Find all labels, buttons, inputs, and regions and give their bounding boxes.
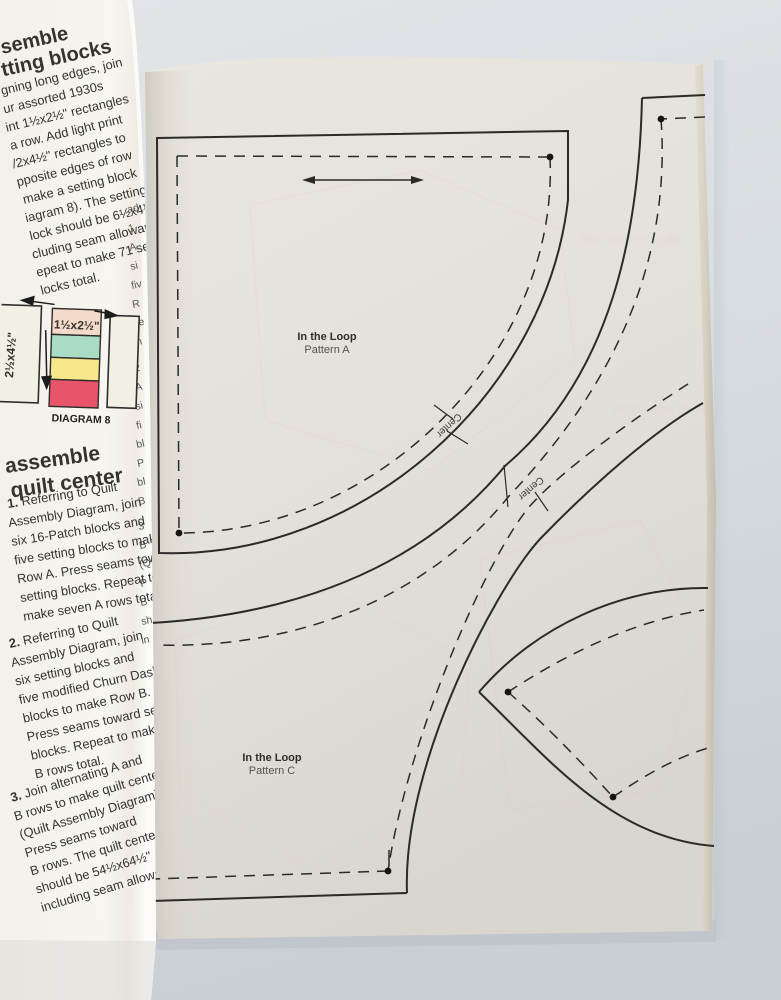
svg-text:DIAGRAM 8: DIAGRAM 8: [51, 412, 110, 426]
svg-text:Pattern A: Pattern A: [304, 344, 350, 356]
svg-text:in the loop: in the loop: [720, 636, 780, 651]
svg-text:block setting quilt: block setting quilt: [580, 231, 680, 246]
svg-text:In the Loop: In the Loop: [242, 752, 302, 764]
svg-text:1½x2½": 1½x2½": [54, 317, 100, 333]
svg-text:In the Loop: In the Loop: [297, 331, 357, 343]
svg-text:Pattern C: Pattern C: [249, 765, 296, 777]
